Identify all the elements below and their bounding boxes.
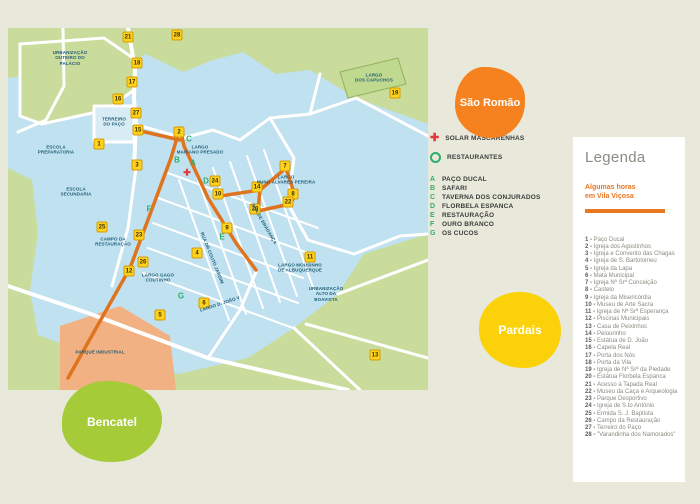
legend-item-9: 9 - Igreja da Misericórdia [585, 295, 677, 302]
map-marker-25: 25 [97, 222, 108, 233]
map-label: ESCOLA SECUNDARIA [60, 187, 91, 198]
legend-item-14: 14 - Pelourinho [585, 331, 677, 338]
map-letter-C: C [186, 135, 192, 144]
map-letter-A: A [190, 159, 196, 168]
map-marker-2: 2 [174, 127, 185, 138]
map-label: URBANIZAÇÃO OUTEIRO DO PALÁCIO [53, 50, 88, 66]
map-label: LARGO DOS CAPUCHOS [355, 73, 393, 84]
legend-accent-bar [585, 209, 665, 213]
legend-item-7: 7 - Igreja Nª Srª Conceição [585, 280, 677, 287]
region-pardais: Pardais [479, 292, 561, 368]
map-marker-3: 3 [132, 160, 143, 171]
legend-panel: Legenda Algumas horas em Vila Viçosa 1 -… [573, 137, 685, 482]
map-key: ✚ SOLAR MASCARENHAS RESTAURANTES APAÇO D… [430, 133, 568, 238]
legend-item-17: 17 - Porta dos Nós [585, 353, 677, 360]
key-restaurantes-row: RESTAURANTES [430, 152, 568, 163]
region-pardais-label: Pardais [498, 323, 541, 337]
restaurantes-label: RESTAURANTES [447, 154, 502, 161]
legend-item-6: 6 - Mata Municipal [585, 273, 677, 280]
legend-item-8: 8 - Castelo [585, 287, 677, 294]
region-bencatel-label: Bencatel [87, 415, 137, 429]
map-letter-E: E [219, 233, 224, 242]
map-label: CAMPO DA RESTAURAÇÃO [95, 237, 131, 248]
map-marker-12: 12 [124, 266, 135, 277]
map-marker-21: 21 [123, 32, 134, 43]
map-marker-7: 7 [280, 161, 291, 172]
key-item-D: DFLORBELA ESPANCA [430, 202, 568, 211]
map-marker-13: 13 [370, 350, 381, 361]
town-map: 2128181716271152324101420782294232526125… [8, 28, 428, 390]
legend-item-18: 18 - Porta da Vila [585, 360, 677, 367]
legend-item-23: 23 - Parque Desportivo [585, 396, 677, 403]
map-label: LARGO MARIANO PRESADO [177, 145, 224, 156]
map-marker-15: 15 [133, 125, 144, 136]
map-marker-1: 1 [94, 139, 105, 150]
key-item-C: CTAVERNA DOS CONJURADOS [430, 193, 568, 202]
legend-subtitle-line2: em Vila Viçosa [585, 193, 677, 202]
legend-item-11: 11 - Igreja de Nª Srª Esperança [585, 309, 677, 316]
map-letter-D: D [203, 177, 209, 186]
legend-item-22: 22 - Museu da Caça e Arqueologia [585, 389, 677, 396]
map-letter-B: B [174, 156, 180, 165]
map-marker-23: 23 [134, 230, 145, 241]
legend-item-16: 16 - Capela Real [585, 345, 677, 352]
map-letter-F: F [147, 205, 152, 214]
legend-item-5: 5 - Igreja da Lapa [585, 266, 677, 273]
legend-item-27: 27 - Terreiro do Paço [585, 425, 677, 432]
region-bencatel: Bencatel [62, 381, 162, 462]
legend-item-4: 4 - Igreja de S. Bartolomeu [585, 258, 677, 265]
legend-item-21: 21 - Acesso à Tapada Real [585, 382, 677, 389]
map-overlay: 2128181716271152324101420782294232526125… [8, 28, 428, 390]
key-list: APAÇO DUCALBSAFARICTAVERNA DOS CONJURADO… [430, 175, 568, 238]
legend-list: 1 - Paço Ducal2 - Igreja dos Agostinhos3… [585, 237, 677, 440]
key-item-F: FOURO BRANCO [430, 220, 568, 229]
legend-item-3: 3 - Igreja e Convento das Chagas [585, 251, 677, 258]
legend-item-25: 25 - Ermida S. J. Baptista [585, 411, 677, 418]
restaurant-ring-icon [430, 152, 441, 163]
legend-item-28: 28 - "Varandinha dos Namorados" [585, 432, 677, 439]
key-item-B: BSAFARI [430, 184, 568, 193]
map-label: URBANIZAÇÃO ALTO DA BOAVISTA [309, 286, 344, 302]
map-label: RUA DE BRAGANÇA [250, 203, 278, 246]
legend-item-15: 15 - Estátua de D. João [585, 338, 677, 345]
map-label: LARGO NUNO ÁLVARES PEREIRA [257, 175, 316, 186]
map-label: LARGO GAGO COUTINHO [142, 273, 174, 284]
legend-item-2: 2 - Igreja dos Agostinhos [585, 244, 677, 251]
solar-cross-icon: ✚ [430, 133, 439, 144]
map-marker-10: 10 [213, 189, 224, 200]
legend-subtitle-line1: Algumas horas [585, 184, 677, 193]
legend-item-10: 10 - Museu de Arte Sacra [585, 302, 677, 309]
region-sao-romao: São Romão [455, 67, 525, 138]
legend-item-12: 12 - Piscinas Municipais [585, 316, 677, 323]
legend-item-26: 26 - Campo da Restauração [585, 418, 677, 425]
legend-item-24: 24 - Igreja de S.to António [585, 403, 677, 410]
map-letter-G: G [178, 292, 184, 301]
map-marker-27: 27 [131, 108, 142, 119]
map-marker-22: 22 [283, 197, 294, 208]
solar-mascarenhas-icon: ✚ [183, 169, 191, 178]
map-label: TERREIRO DO PAÇO [102, 117, 126, 128]
legend-item-1: 1 - Paço Ducal [585, 237, 677, 244]
legend-title: Legenda [585, 149, 677, 166]
legend-item-19: 19 - Igreja de Nª Srª da Piedade [585, 367, 677, 374]
map-marker-24: 24 [210, 176, 221, 187]
map-marker-16: 16 [113, 94, 124, 105]
map-marker-28: 28 [172, 30, 183, 41]
legend-item-13: 13 - Casa de Peixinhos [585, 324, 677, 331]
region-sao-romao-label: São Romão [460, 97, 521, 109]
legend-item-20: 20 - Estátua Florbela Espanca [585, 374, 677, 381]
map-label: PARQUE INDUSTRIAL [75, 349, 124, 354]
legend-subtitle: Algumas horas em Vila Viçosa [585, 184, 677, 202]
map-label: LARGO MOUSINHO DE ALBUQUERQUE [278, 263, 322, 274]
key-item-G: GOS CUCOS [430, 229, 568, 238]
map-marker-26: 26 [138, 257, 149, 268]
key-item-E: ERESTAURAÇÃO [430, 211, 568, 220]
map-marker-18: 18 [132, 58, 143, 69]
map-marker-5: 5 [155, 310, 166, 321]
map-marker-11: 11 [305, 252, 316, 263]
map-marker-19: 19 [390, 88, 401, 99]
key-item-A: APAÇO DUCAL [430, 175, 568, 184]
map-marker-4: 4 [192, 248, 203, 259]
map-marker-17: 17 [127, 77, 138, 88]
map-label: ESCOLA PREPARATORIA [38, 145, 74, 156]
